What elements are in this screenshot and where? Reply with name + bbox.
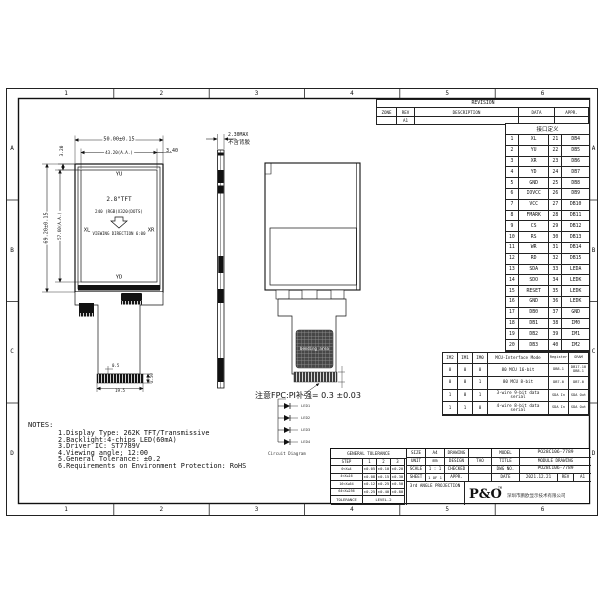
drawing-value	[468, 449, 491, 458]
interface-cell: 1	[458, 402, 473, 415]
tolerance-col-header: 3	[391, 459, 405, 467]
pin-name: DB9	[562, 189, 589, 200]
tolerance-cell: 0<X≤4	[331, 466, 363, 474]
company-name: 深圳市鹏欧显示技术有限公司	[507, 495, 566, 500]
tolerance-cell: ±0.05	[363, 466, 377, 474]
note-item: 6.Requirements on Environment Protection…	[58, 463, 246, 470]
interface-mode-table: IM2IM1IM0MCU-Interface ModeRegisterGRAM0…	[442, 352, 590, 416]
pin-row: 13SDA33LEDA	[506, 265, 589, 276]
pin-row: 19DB239IM1	[506, 329, 589, 340]
dim-width-aa: 43.20(A.A.)	[104, 150, 134, 154]
pin-number: 12	[506, 254, 519, 265]
pin-row: 6IOVCC26DB9	[506, 189, 589, 200]
thickness-dim: 2.30MAX	[228, 134, 248, 139]
led-circuit-diagram	[278, 399, 298, 445]
sheet-value: 1 OF 1	[425, 474, 444, 482]
pin-number: 40	[549, 340, 562, 351]
pin-number: 3	[506, 157, 519, 168]
pin-row: 9CS29DB12	[506, 221, 589, 232]
revision-rev: A1	[397, 116, 415, 124]
zone-number: 6	[541, 507, 545, 513]
pin-number: 6	[506, 189, 519, 200]
pin-number: 38	[549, 319, 562, 330]
led-label: LED1	[301, 404, 310, 408]
led-label: LED4	[301, 440, 310, 444]
title-block: GENERAL TOLERANCESTEP1230<X≤4±0.05±0.10±…	[330, 448, 590, 504]
pin-row: 14SDO34LEDK	[506, 275, 589, 286]
pin-name: DB13	[562, 232, 589, 243]
revision-zone	[377, 116, 397, 124]
date-value: 2021.12.21	[519, 474, 557, 482]
revision-table-title: REVISION	[377, 100, 589, 108]
zone-number: 1	[64, 91, 68, 97]
interface-cell: 3-wire 9-bit data serial	[488, 390, 549, 403]
tolerance-cell: ±0.25	[377, 481, 391, 489]
interface-cell: 1	[473, 377, 488, 390]
zone-letter: B	[10, 248, 14, 254]
pin-row: 4YD24DB7	[506, 167, 589, 178]
date-label: DATE	[491, 474, 519, 482]
dim-right: 3.40	[166, 149, 178, 154]
pin-number: 37	[549, 308, 562, 319]
circuit-caption: Circuit Diagram	[268, 452, 306, 456]
pin-number: 26	[549, 189, 562, 200]
pin-row: 12RD32DB15	[506, 254, 589, 265]
pin-name: LEDA	[562, 265, 589, 276]
drawing-label: DRAWING	[444, 449, 468, 458]
interface-row: 1104-wire 8-bit data serialSDA InSDA Out	[443, 402, 589, 415]
pin-row: 15RESET35LEDK	[506, 286, 589, 297]
tolerance-footer-value: LEVEL-2	[363, 496, 405, 505]
dim-width: 50.00±0.15	[102, 137, 135, 142]
notes-list: 1.Display Type: 262K TFT/Transmissive2.B…	[58, 430, 246, 470]
pin-number: 11	[506, 243, 519, 254]
glass-label-top: YU	[116, 172, 123, 178]
interface-cell: SDA In	[549, 402, 569, 415]
title-label: TITLE	[491, 458, 519, 466]
interface-cell: 1	[443, 390, 458, 403]
pin-number: 34	[549, 275, 562, 286]
design-label: DESIGN	[444, 458, 468, 466]
pin-name: LEDK	[562, 275, 589, 286]
zone-letter: D	[10, 451, 14, 457]
unit-value: mm	[425, 458, 444, 466]
pin-number: 20	[506, 340, 519, 351]
pin-row: 18DB138IM0	[506, 319, 589, 330]
dim-height-aa: 57.60(A.A.)	[58, 211, 62, 241]
interface-cell: 0	[443, 377, 458, 390]
bending-area-label: bending area	[300, 347, 329, 351]
zone-number: 4	[350, 91, 354, 97]
checked-value	[468, 466, 491, 474]
sheet-label: SHEET	[406, 474, 425, 482]
pin-number: 33	[549, 265, 562, 276]
dwg-no-value: PO28C106-7789	[519, 466, 591, 474]
tolerance-cell: 64<X≤256	[331, 489, 363, 497]
size-label: SIZE	[406, 449, 425, 458]
pin-number: 23	[549, 157, 562, 168]
zone-letter: A	[592, 146, 596, 152]
tolerance-row: 4<X≤16±0.08±0.15±0.30	[331, 474, 406, 482]
pin-name: DB2	[519, 329, 550, 340]
pin-number: 7	[506, 200, 519, 211]
pin-number: 2	[506, 146, 519, 157]
fpc-stiffener-note: 注意FPC:PI补强= 0.3 ±0.03	[255, 392, 361, 400]
pin-number: 13	[506, 265, 519, 276]
pin-name: DB15	[562, 254, 589, 265]
pin-row: 2YU22DB5	[506, 146, 589, 157]
zone-letter: C	[592, 349, 596, 355]
pin-number: 9	[506, 221, 519, 232]
interface-col-header: Register	[549, 353, 569, 364]
pin-name: GND	[519, 297, 550, 308]
pin-number: 10	[506, 232, 519, 243]
pin-number: 30	[549, 232, 562, 243]
pin-name: SDO	[519, 275, 550, 286]
tolerance-header: GENERAL TOLERANCE	[331, 449, 406, 459]
zone-number: 5	[445, 91, 449, 97]
pin-name: YU	[519, 146, 550, 157]
tolerance-cell: ±0.20	[391, 466, 405, 474]
tolerance-cell: ±0.40	[377, 489, 391, 497]
interface-cell: 0	[458, 390, 473, 403]
tolerance-footer: TOLERANCELEVEL-2	[331, 496, 406, 505]
pin-name: CS	[519, 221, 550, 232]
pin-number: 36	[549, 297, 562, 308]
pin-row: 10RS30DB13	[506, 232, 589, 243]
pin-name: DB14	[562, 243, 589, 254]
pin-name: WR	[519, 243, 550, 254]
pin-name: IM1	[562, 329, 589, 340]
tolerance-cell: 4<X≤16	[331, 474, 363, 482]
pin-name: LEDK	[562, 286, 589, 297]
interface-cell: 0	[458, 377, 473, 390]
zone-number: 2	[159, 91, 163, 97]
tolerance-row: 16<X≤64±0.12±0.25±0.50	[331, 481, 406, 489]
interface-cell: SDA In	[549, 390, 569, 403]
interface-cell: 0	[443, 364, 458, 377]
interface-cell: 80 MCU 8-bit	[488, 377, 549, 390]
revision-col-header: ZONE	[377, 108, 397, 116]
model-label: MODEL	[491, 449, 519, 458]
pin-table-header: 接口定义	[506, 124, 589, 135]
pin-row: 5GND25DB8	[506, 178, 589, 189]
tolerance-col-header: 1	[363, 459, 377, 467]
pin-name: SDA	[519, 265, 550, 276]
interface-row: 00080 MCU 16-bitDB8-1DB17-10 DB8-1	[443, 364, 589, 377]
tolerance-cell: ±0.15	[377, 474, 391, 482]
glass-label-left: XL	[84, 228, 91, 234]
pin-table-rows: 1XL21DB42YU22DB53XR23DB64YD24DB75GND25DB…	[506, 135, 589, 351]
checked-label: CHECKED	[444, 466, 468, 474]
pin-number: 32	[549, 254, 562, 265]
pin-number: 5	[506, 178, 519, 189]
pin-number: 14	[506, 275, 519, 286]
side-view-outline	[218, 150, 225, 388]
glass-label-right: XR	[148, 228, 155, 234]
interface-cell: SDA Out	[569, 390, 589, 403]
dim-top-left: 3.20	[61, 146, 66, 157]
pin-number: 17	[506, 308, 519, 319]
revision-col-header: REV	[397, 108, 415, 116]
pin-number: 21	[549, 135, 562, 146]
tolerance-cell: ±0.10	[377, 466, 391, 474]
tolerance-col-header: STEP	[331, 459, 363, 467]
pin-name: DB11	[562, 211, 589, 222]
interface-cell: 1	[443, 402, 458, 415]
title-value: MODULE DRAWING	[519, 458, 591, 466]
notes-title: NOTES:	[28, 421, 53, 429]
projection-label: 3rd ANGLE PROJECTION	[410, 484, 460, 488]
zone-letter: A	[10, 146, 14, 152]
tolerance-row: 0<X≤4±0.05±0.10±0.20	[331, 466, 406, 474]
pin-row: 17DB037GND	[506, 308, 589, 319]
design-value: TAO	[468, 458, 491, 466]
revision-table-header-row: ZONEREVDESCRIPTIONDATAAPPR.	[377, 108, 589, 116]
pin-name: DB4	[562, 135, 589, 146]
drawing-sheet: 50.00±0.15 43.20(A.A.) 3.40 3.20 69.20±0…	[0, 0, 600, 600]
pin-name: RESET	[519, 286, 550, 297]
pin-name: DB12	[562, 221, 589, 232]
pin-number: 1	[506, 135, 519, 146]
led-label: LED2	[301, 416, 310, 420]
rev-label: REV	[557, 474, 573, 482]
zone-number: 4	[350, 507, 354, 513]
tolerance-footer-label: TOLERANCE	[331, 496, 363, 505]
dwg-no-label: DWG NO.	[491, 466, 519, 474]
interface-cell: DB7-0	[569, 377, 589, 390]
tolerance-cell: ±0.80	[391, 489, 405, 497]
pin-name: DB1	[519, 319, 550, 330]
tolerance-cell: 16<X≤64	[331, 481, 363, 489]
scale-value: 1 : 1	[425, 466, 444, 474]
pin-name: VCC	[519, 200, 550, 211]
pin-number: 31	[549, 243, 562, 254]
pin-number: 35	[549, 286, 562, 297]
pin-name: LEDK	[562, 297, 589, 308]
pin-number: 25	[549, 178, 562, 189]
tolerance-cell: ±0.25	[363, 489, 377, 497]
tolerance-row: 64<X≤256±0.25±0.40±0.80	[331, 489, 406, 497]
zone-letter: D	[592, 451, 596, 457]
tolerance-cell: ±0.08	[363, 474, 377, 482]
model-value: PO28C106-7789	[519, 449, 591, 458]
revision-table: REVISION ZONEREVDESCRIPTIONDATAAPPR. A1	[376, 99, 590, 125]
appr-value	[468, 474, 491, 482]
size-value: A4	[425, 449, 444, 458]
fpc-pitch-dim: 0.5	[112, 364, 119, 368]
pin-number: 18	[506, 319, 519, 330]
pin-name: DB8	[562, 178, 589, 189]
interface-cell: 0	[473, 402, 488, 415]
zone-number: 3	[255, 91, 259, 97]
pin-name: IOVCC	[519, 189, 550, 200]
interface-cell: DB17-10 DB8-1	[569, 364, 589, 377]
tolerance-cell: ±0.30	[391, 474, 405, 482]
interface-col-header: GRAM	[569, 353, 589, 364]
pin-name: IM0	[562, 319, 589, 330]
pin-number: 16	[506, 297, 519, 308]
tolerance-col-headers: STEP123	[331, 459, 406, 467]
rev-value: A1	[573, 474, 591, 482]
interface-cell: SDA Out	[569, 402, 589, 415]
pin-number: 4	[506, 167, 519, 178]
revision-description	[415, 116, 519, 124]
logo-trademark: TM	[498, 487, 502, 490]
unit-label: UNIT	[406, 458, 425, 466]
pin-number: 19	[506, 329, 519, 340]
revision-col-header: DESCRIPTION	[415, 108, 519, 116]
pin-row: 7VCC27DB10	[506, 200, 589, 211]
tolerance-cell: ±0.50	[391, 481, 405, 489]
pin-number: 27	[549, 200, 562, 211]
glass-label-bottom: YD	[116, 275, 123, 281]
pin-name: RS	[519, 232, 550, 243]
pin-name: DB10	[562, 200, 589, 211]
interface-row: 1013-wire 9-bit data serialSDA InSDA Out	[443, 390, 589, 403]
interface-cell: DB7-0	[549, 377, 569, 390]
pin-name: DB6	[562, 157, 589, 168]
zone-number: 5	[445, 507, 449, 513]
pin-number: 8	[506, 211, 519, 222]
zone-number: 1	[64, 507, 68, 513]
pin-number: 15	[506, 286, 519, 297]
pin-number: 24	[549, 167, 562, 178]
scale-label: SCALE	[406, 466, 425, 474]
revision-col-header: DATA	[519, 108, 555, 116]
pin-name: GND	[562, 308, 589, 319]
led-label: LED3	[301, 428, 310, 432]
pin-row: 11WR31DB14	[506, 243, 589, 254]
pin-number: 39	[549, 329, 562, 340]
interface-col-header: IM2	[443, 353, 458, 364]
interface-col-header: MCU-Interface Mode	[488, 353, 549, 364]
interface-row: 00180 MCU 8-bitDB7-0DB7-0	[443, 377, 589, 390]
display-type-text: 2.8"TFT	[106, 197, 131, 203]
fpc-height-dim: 2.50	[150, 373, 154, 383]
pin-number: 28	[549, 211, 562, 222]
interface-col-header: IM0	[473, 353, 488, 364]
tolerance-col-header: 2	[377, 459, 391, 467]
appr-label: APPR.	[444, 474, 468, 482]
interface-cell: 0	[473, 364, 488, 377]
tolerance-cell: ±0.12	[363, 481, 377, 489]
zone-number: 3	[255, 507, 259, 513]
pin-name: IM2	[562, 340, 589, 351]
pin-row: 8FMARK28DB11	[506, 211, 589, 222]
viewing-direction-text: VIEWING DIRECTION 6:00	[93, 232, 146, 236]
pin-row: 16GND36LEDK	[506, 297, 589, 308]
pin-name: XR	[519, 157, 550, 168]
interface-header-row: IM2IM1IM0MCU-Interface ModeRegisterGRAM	[443, 353, 589, 364]
interface-cell: DB8-1	[549, 364, 569, 377]
pin-row: 1XL21DB4	[506, 135, 589, 146]
interface-cell: 4-wire 8-bit data serial	[488, 402, 549, 415]
zone-number: 6	[541, 91, 545, 97]
interface-cell: 0	[458, 364, 473, 377]
dim-height: 69.20±0.15	[44, 211, 49, 244]
pin-row: 3XR23DB6	[506, 157, 589, 168]
revision-col-header: APPR.	[555, 108, 589, 116]
zone-number: 2	[159, 507, 163, 513]
interface-cell: 1	[473, 390, 488, 403]
pin-name: DB0	[519, 308, 550, 319]
pin-name: DB3	[519, 340, 550, 351]
pin-name: XL	[519, 135, 550, 146]
pin-name: RD	[519, 254, 550, 265]
thickness-note: 不含背胶	[228, 141, 250, 147]
pin-row: 20DB340IM2	[506, 340, 589, 351]
general-tolerance-table: GENERAL TOLERANCESTEP1230<X≤4±0.05±0.10±…	[331, 449, 406, 505]
pin-number: 29	[549, 221, 562, 232]
pin-table: 接口定义 1XL21DB42YU22DB53XR23DB64YD24DB75GN…	[505, 123, 590, 352]
pin-number: 22	[549, 146, 562, 157]
pin-name: YD	[519, 167, 550, 178]
interface-col-header: IM1	[458, 353, 473, 364]
company-logo: P&O	[469, 488, 502, 501]
pin-name: DB7	[562, 167, 589, 178]
pin-name: FMARK	[519, 211, 550, 222]
zone-letter: B	[592, 248, 596, 254]
fpc-width-dim: 19.5	[114, 389, 126, 393]
pin-name: GND	[519, 178, 550, 189]
back-view-outline	[265, 163, 360, 392]
interface-cell: 80 MCU 16-bit	[488, 364, 549, 377]
pin-name: DB5	[562, 146, 589, 157]
zone-letter: C	[10, 349, 14, 355]
resolution-text: 240 (RGB)X320(DOTS)	[95, 210, 143, 214]
